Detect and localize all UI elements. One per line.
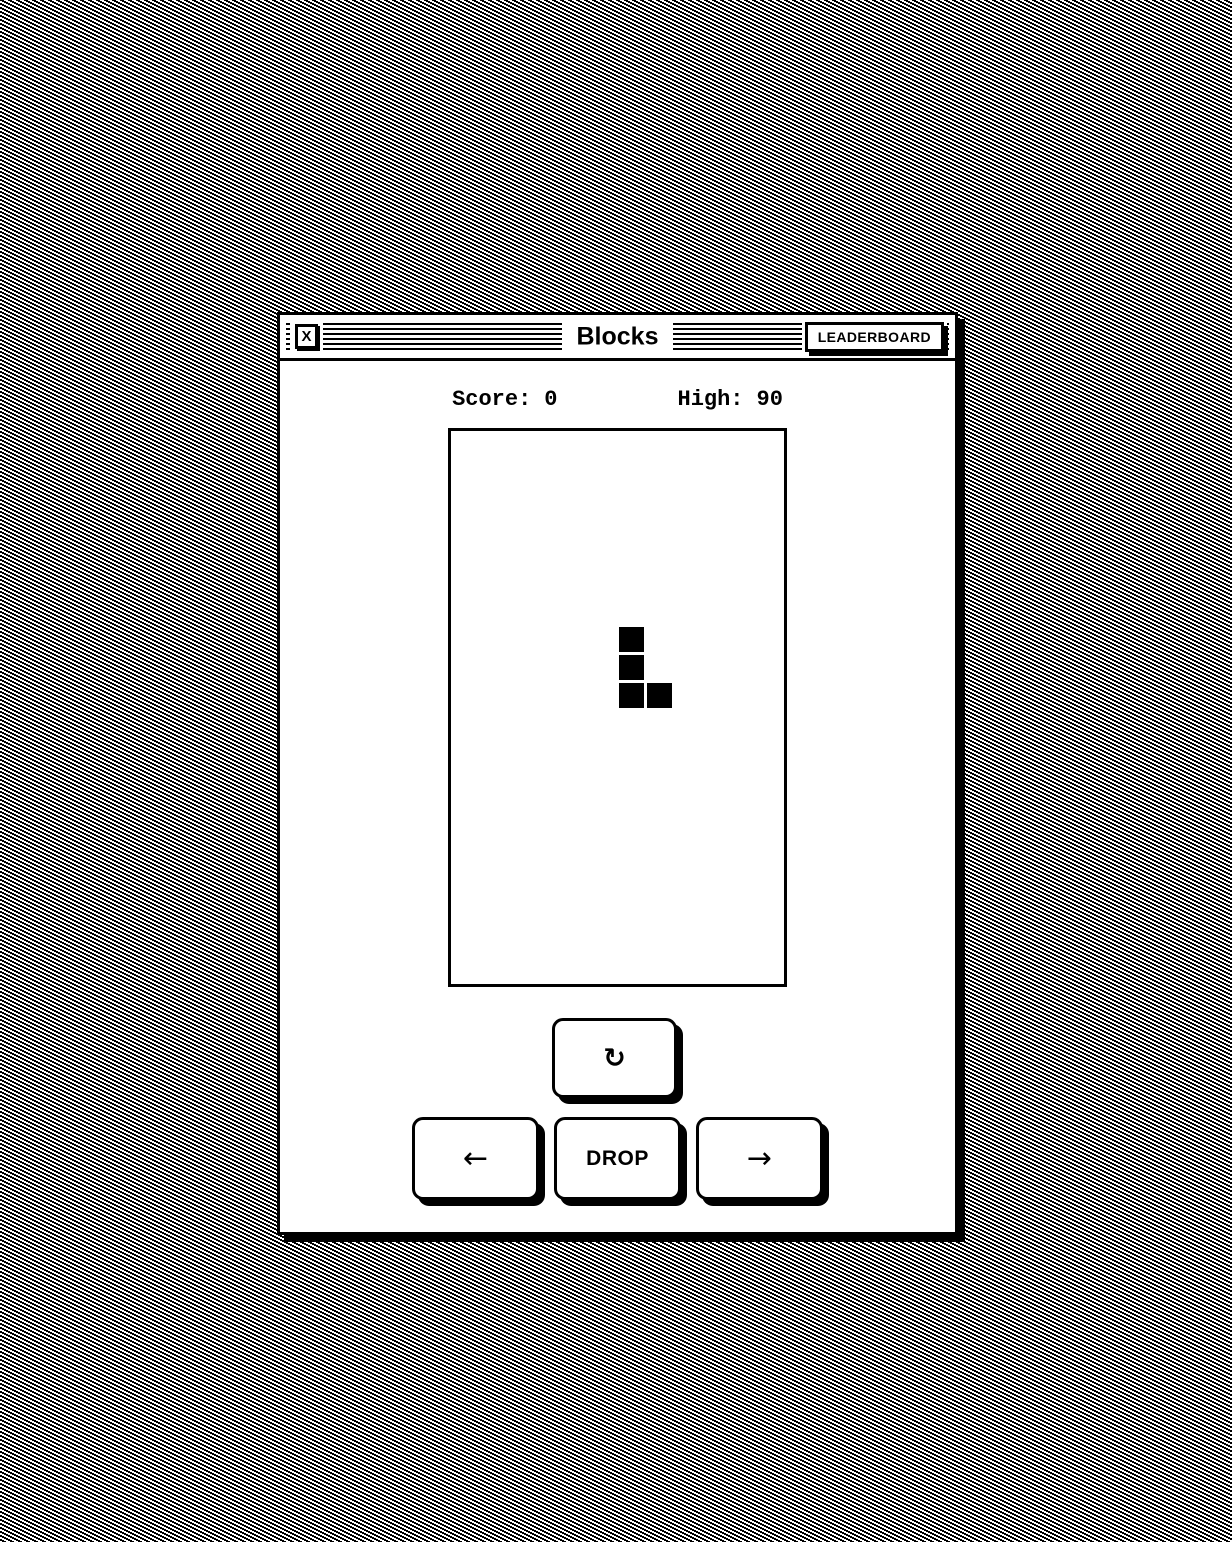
score-label: Score: — [452, 389, 531, 411]
tetromino-block — [647, 683, 672, 708]
high-score-display: High: 90 — [678, 389, 783, 411]
tetromino-block — [619, 627, 644, 652]
controls-row: ← DROP → — [280, 1117, 955, 1200]
rotate-icon: ↻ — [603, 1045, 626, 1072]
right-arrow-icon: → — [747, 1144, 772, 1174]
close-button[interactable]: X — [295, 324, 318, 349]
high-score-value: 90 — [757, 389, 783, 411]
drop-button-label: DROP — [586, 1147, 649, 1171]
drop-button[interactable]: DROP — [554, 1117, 681, 1200]
close-button-frame: X — [290, 320, 323, 353]
score-display: Score: 0 — [452, 389, 557, 411]
left-arrow-icon: ← — [463, 1144, 488, 1174]
rotate-button[interactable]: ↻ — [552, 1018, 677, 1098]
tetromino-block — [619, 655, 644, 680]
scoreboard: Score: 0 High: 90 — [280, 389, 955, 411]
title-bar: X Blocks LEADERBOARD — [280, 315, 955, 361]
move-left-button[interactable]: ← — [412, 1117, 539, 1200]
window-title: Blocks — [562, 320, 674, 353]
game-window: X Blocks LEADERBOARD Score: 0 High: 90 ↻… — [277, 312, 958, 1235]
score-value: 0 — [544, 389, 557, 411]
tetromino-block — [619, 683, 644, 708]
high-score-label: High: — [678, 389, 744, 411]
close-icon: X — [301, 328, 311, 345]
leaderboard-button-frame: LEADERBOARD — [802, 319, 947, 355]
move-right-button[interactable]: → — [696, 1117, 823, 1200]
game-board — [448, 428, 787, 987]
leaderboard-button[interactable]: LEADERBOARD — [805, 322, 944, 352]
